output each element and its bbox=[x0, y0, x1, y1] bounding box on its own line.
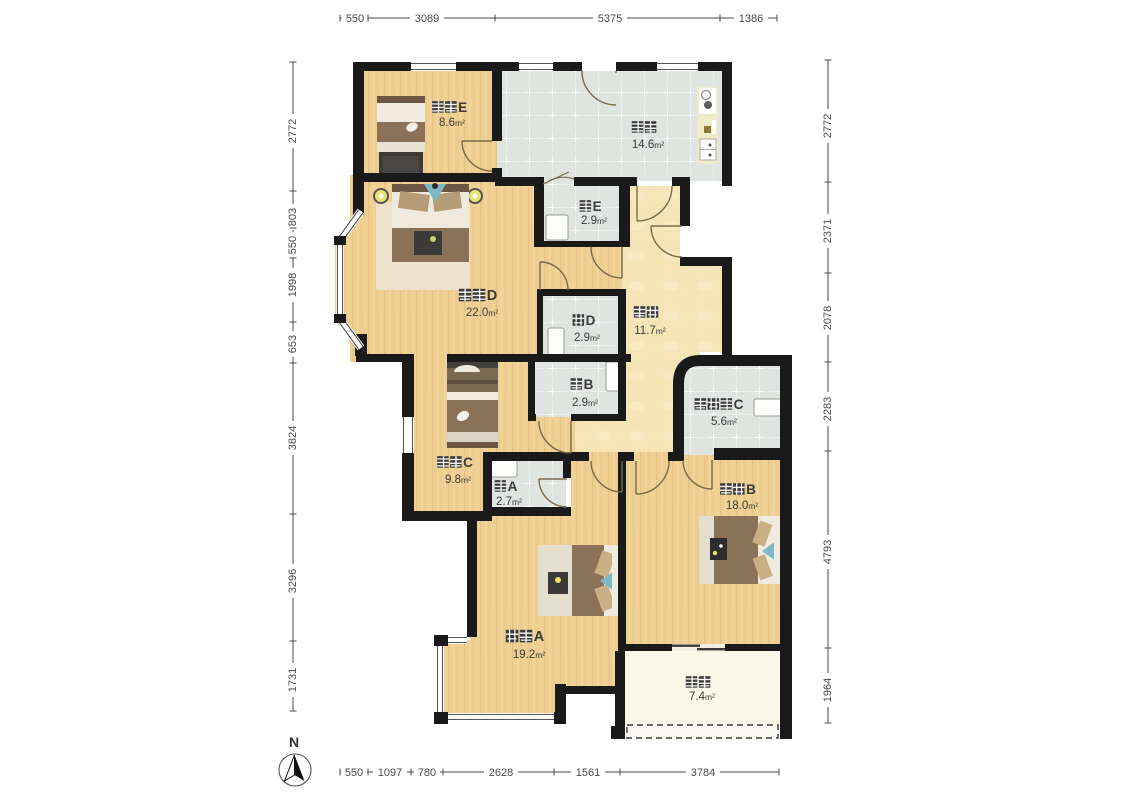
svg-text:2283: 2283 bbox=[822, 397, 834, 421]
svg-text:3296: 3296 bbox=[287, 569, 299, 593]
svg-text:22.0m²: 22.0m² bbox=[466, 307, 498, 319]
svg-text:C: C bbox=[463, 455, 473, 470]
svg-text:C: C bbox=[734, 397, 744, 412]
svg-text:B: B bbox=[746, 482, 756, 497]
svg-text:1731: 1731 bbox=[287, 668, 299, 692]
svg-text:2.9m²: 2.9m² bbox=[581, 215, 607, 227]
svg-text:2078: 2078 bbox=[822, 306, 834, 330]
svg-text:550: 550 bbox=[287, 236, 299, 254]
svg-text:14.6m²: 14.6m² bbox=[632, 139, 664, 151]
svg-text:3824: 3824 bbox=[287, 426, 299, 450]
svg-text:3784: 3784 bbox=[691, 767, 715, 779]
svg-text:E: E bbox=[458, 100, 467, 115]
svg-text:1561: 1561 bbox=[576, 767, 600, 779]
svg-text:5375: 5375 bbox=[598, 13, 622, 25]
svg-text:N: N bbox=[289, 734, 299, 750]
svg-text:19.2m²: 19.2m² bbox=[513, 649, 545, 661]
svg-text:A: A bbox=[534, 629, 545, 645]
svg-text:3089: 3089 bbox=[415, 13, 439, 25]
svg-text:2.9m²: 2.9m² bbox=[572, 397, 598, 409]
svg-text:1097: 1097 bbox=[378, 767, 402, 779]
svg-text:11.7m²: 11.7m² bbox=[634, 325, 666, 337]
svg-text:D: D bbox=[487, 288, 497, 304]
svg-text:B: B bbox=[584, 377, 594, 392]
svg-text:2628: 2628 bbox=[489, 767, 513, 779]
svg-text:D: D bbox=[586, 313, 596, 328]
svg-text:2.7m²: 2.7m² bbox=[496, 496, 522, 508]
svg-text:5.6m²: 5.6m² bbox=[711, 416, 737, 428]
svg-text:803: 803 bbox=[287, 208, 299, 226]
svg-text:E: E bbox=[593, 199, 602, 214]
svg-text:1964: 1964 bbox=[822, 678, 834, 702]
svg-text:1998: 1998 bbox=[287, 273, 299, 297]
svg-text:8.6m²: 8.6m² bbox=[439, 117, 465, 129]
svg-text:1386: 1386 bbox=[739, 13, 763, 25]
svg-text:9.8m²: 9.8m² bbox=[445, 474, 471, 486]
svg-text:653: 653 bbox=[287, 335, 299, 353]
svg-text:2772: 2772 bbox=[822, 114, 834, 138]
svg-text:18.0m²: 18.0m² bbox=[726, 500, 758, 512]
svg-text:550: 550 bbox=[346, 13, 364, 25]
svg-text:A: A bbox=[508, 479, 518, 494]
svg-text:2772: 2772 bbox=[287, 119, 299, 143]
svg-text:2371: 2371 bbox=[822, 219, 834, 243]
svg-text:550: 550 bbox=[345, 767, 363, 779]
svg-text:4793: 4793 bbox=[822, 540, 834, 564]
svg-text:780: 780 bbox=[418, 767, 436, 779]
svg-text:7.4m²: 7.4m² bbox=[689, 691, 715, 703]
svg-text:2.9m²: 2.9m² bbox=[574, 332, 600, 344]
